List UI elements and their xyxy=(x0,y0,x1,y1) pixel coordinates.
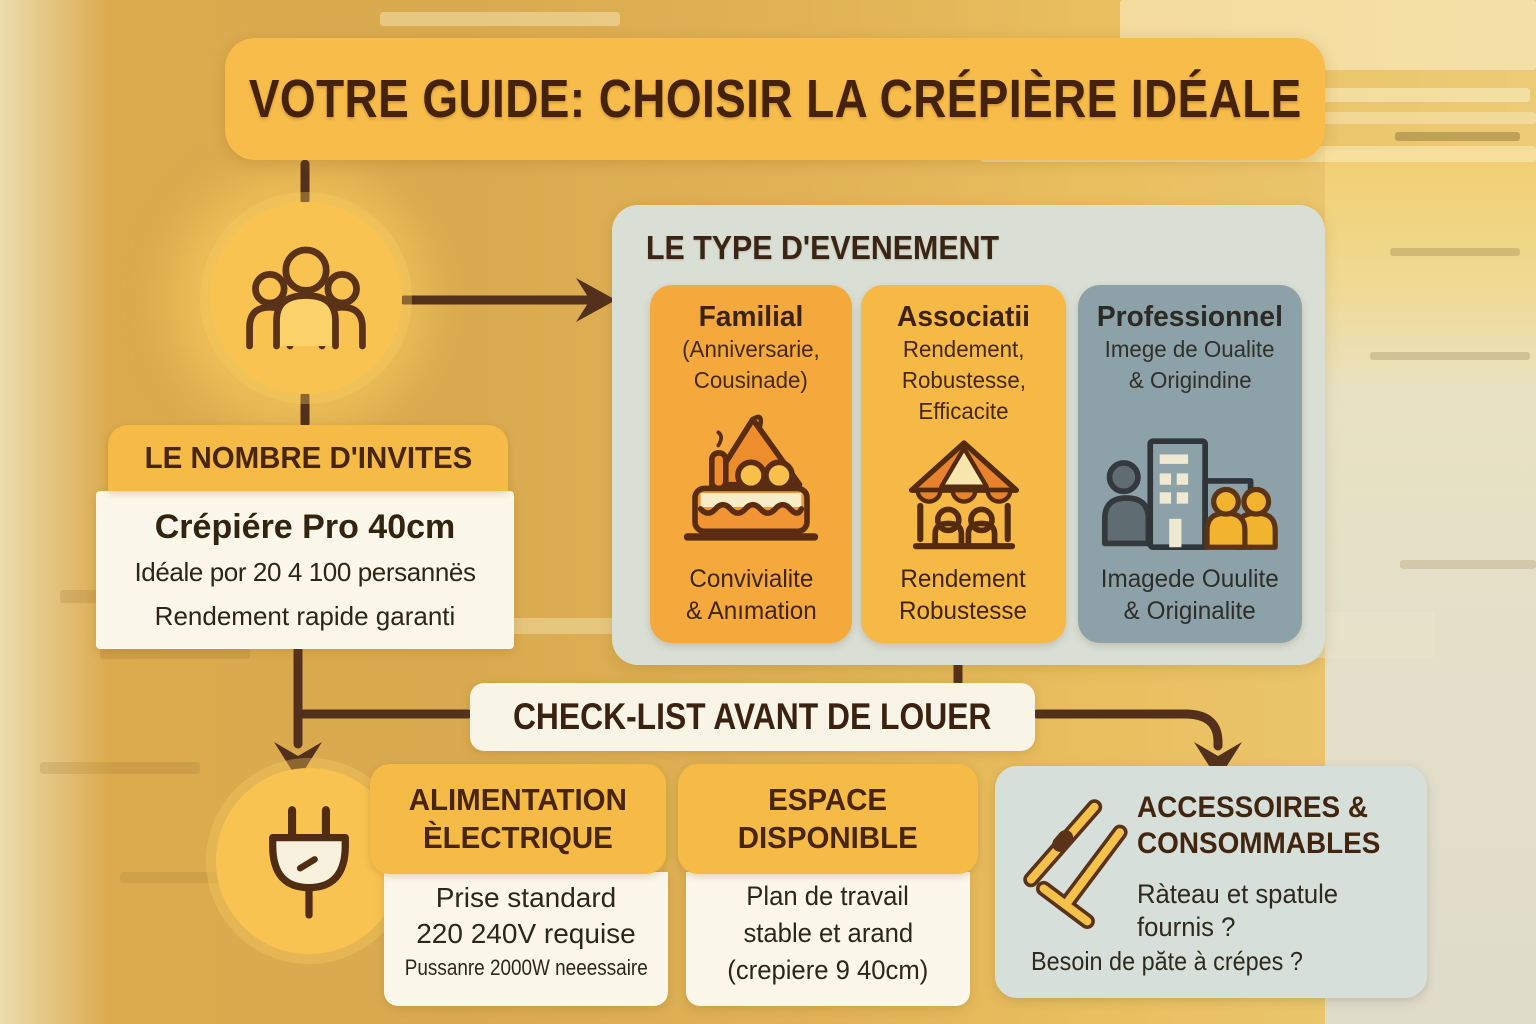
product-name: Crépiére Pro 40cm xyxy=(155,508,456,547)
card-subtitle: & Origindine xyxy=(1129,365,1252,396)
space-line1: Plan de travail xyxy=(747,878,910,915)
space-header: ESPACE DISPONIBLE xyxy=(678,764,978,874)
checklist-banner: CHECK-LIST AVANT DE LOUER xyxy=(470,683,1035,751)
power-plug-icon xyxy=(234,786,384,936)
card-footer: Rendement Robustesse xyxy=(897,563,1029,627)
page-title: VOTRE GUIDE: CHOISIR LA CRÉPIÈRE IDÉALE xyxy=(249,68,1302,130)
space-body: Plan de travail stable et arand (crepier… xyxy=(686,872,970,1006)
card-title: Familial xyxy=(699,301,804,334)
space-line2: stable et arand xyxy=(743,915,913,952)
power-line3: Pussanre 2000W neeessaire xyxy=(405,952,648,984)
guest-count-header: LE NOMBRE D'INVITES xyxy=(108,425,508,491)
card-subtitle: Imege de Oualite xyxy=(1105,334,1275,365)
card-associatif: Associatii Rendement, Robustesse, Effica… xyxy=(861,285,1066,643)
card-subtitle: (Anniversarie, xyxy=(682,334,820,365)
guest-count-body: Crépiére Pro 40cm Idéale por 20 4 100 pe… xyxy=(96,491,514,649)
accessories-panel: ACCESSOIRES & CONSOMMABLES Ràteau et spa… xyxy=(995,766,1427,998)
space-line3: (crepiere 9 40cm) xyxy=(727,952,928,989)
card-subtitle: Robustesse, xyxy=(901,365,1025,396)
accessories-title-line1: ACCESSOIRES & xyxy=(1137,790,1380,826)
capacity-text: Idéale por 20 4 100 persannës xyxy=(134,557,475,588)
space-header-line2: DISPONIBLE xyxy=(738,819,918,857)
accessories-line1: Ràteau et spatule xyxy=(1137,878,1338,911)
birthday-cake-icon xyxy=(676,410,826,550)
power-header: ALIMENTATION ÈLECTRIQUE xyxy=(370,764,666,874)
market-stall-icon xyxy=(894,436,1034,554)
card-title: Professionnel xyxy=(1097,301,1283,334)
people-icon xyxy=(226,218,386,378)
accessories-question1: Ràteau et spatule fournis ? xyxy=(1137,878,1338,944)
card-subtitle: Rendement, xyxy=(903,334,1025,365)
card-subtitle: Cousinade) xyxy=(694,365,808,396)
power-line2: 220 240V requise xyxy=(416,916,636,952)
power-body: Prise standard 220 240V requise Pussanre… xyxy=(384,872,668,1006)
card-professionnel: Professionnel Imege de Oualite & Origind… xyxy=(1078,285,1302,643)
space-header-line1: ESPACE xyxy=(769,781,888,819)
accessories-title-line2: CONSOMMABLES xyxy=(1137,826,1380,862)
office-building-icon xyxy=(1095,409,1285,551)
card-title: Associatii xyxy=(897,301,1030,334)
title-banner: VOTRE GUIDE: CHOISIR LA CRÉPIÈRE IDÉALE xyxy=(225,38,1325,160)
card-familial: Familial (Anniversarie, Cousinade) xyxy=(650,285,852,643)
power-header-line1: ALIMENTATION xyxy=(409,781,627,819)
infographic-crepiere-guide: VOTRE GUIDE: CHOISIR LA CRÉPIÈRE IDÉALE … xyxy=(0,0,1536,1024)
accessories-question2: Besoin de păte à crépes ? xyxy=(1031,946,1303,977)
connector-checklist-to-accessories xyxy=(1037,714,1218,746)
power-line1: Prise standard xyxy=(436,880,617,916)
card-footer: Convivialite & Anımation xyxy=(684,563,819,627)
event-type-panel: LE TYPE D'EVENEMENT Familial (Anniversar… xyxy=(612,205,1325,665)
card-subtitle: Efficacite xyxy=(918,396,1008,427)
power-header-line2: ÈLECTRIQUE xyxy=(423,819,613,857)
guests-icon-circle xyxy=(210,202,402,394)
note-text: Rendement rapide garanti xyxy=(155,601,456,632)
checklist-title: CHECK-LIST AVANT DE LOUER xyxy=(513,696,991,738)
accessories-title: ACCESSOIRES & CONSOMMABLES xyxy=(1137,790,1380,862)
crepe-rake-and-spatula-icon xyxy=(1011,790,1129,940)
accessories-line2: fournis ? xyxy=(1137,911,1338,944)
card-footer: Imagede Ouulite & Originalite xyxy=(1098,563,1281,627)
event-panel-title: LE TYPE D'EVENEMENT xyxy=(646,229,999,267)
guest-count-title: LE NOMBRE D'INVITES xyxy=(144,439,472,477)
